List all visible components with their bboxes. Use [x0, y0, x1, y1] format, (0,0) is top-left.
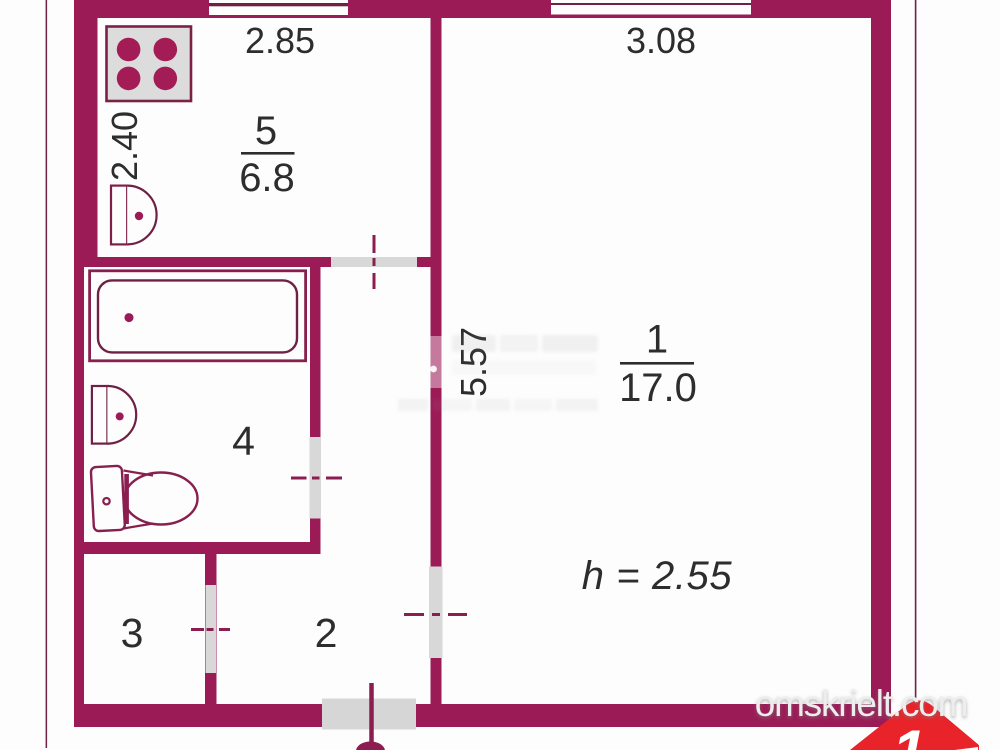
- svg-text:2.85: 2.85: [245, 20, 315, 61]
- svg-text:4: 4: [232, 418, 255, 464]
- svg-text:3: 3: [121, 610, 144, 656]
- svg-text:2: 2: [315, 610, 338, 656]
- svg-text:omskrielt.com: omskrielt.com: [755, 683, 968, 724]
- svg-text:17.0: 17.0: [619, 366, 697, 410]
- svg-text:2.40: 2.40: [104, 111, 145, 181]
- svg-text:1: 1: [646, 318, 668, 362]
- svg-text:h = 2.55: h = 2.55: [582, 554, 733, 598]
- svg-text:3.08: 3.08: [626, 20, 696, 61]
- svg-text:5: 5: [255, 109, 277, 153]
- svg-text:6.8: 6.8: [239, 156, 295, 200]
